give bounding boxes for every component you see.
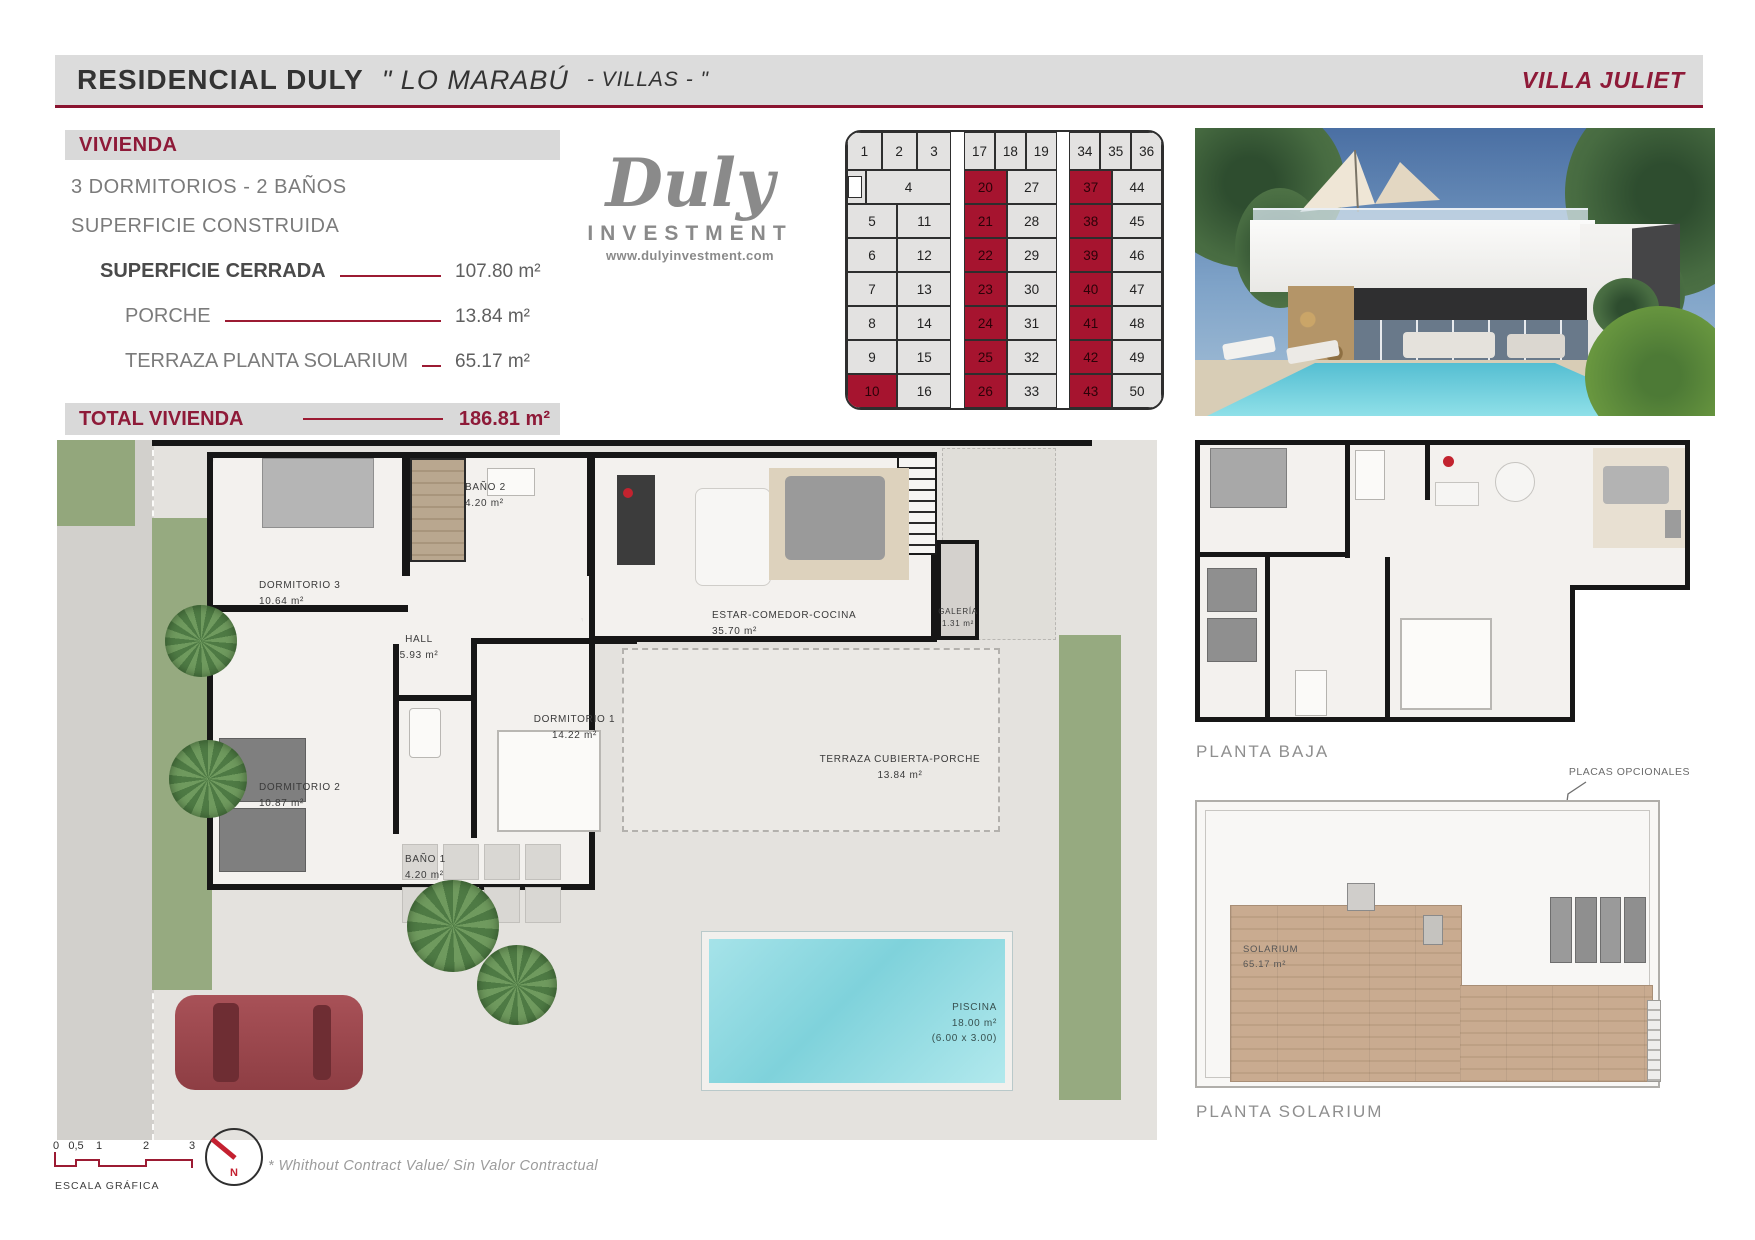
solar-panels xyxy=(1550,897,1646,963)
car-rear-glass xyxy=(313,1005,331,1080)
car xyxy=(175,995,363,1090)
plot-cell: 26 xyxy=(964,374,1007,408)
plot-cell: 20 xyxy=(964,170,1007,204)
svg-text:N: N xyxy=(230,1167,238,1179)
plot-cell: 42 xyxy=(1069,340,1112,374)
row-value: 13.84 m² xyxy=(455,306,560,328)
plot-block-left: 123 4 5678910 111213141516 xyxy=(847,132,951,408)
mini-appliance xyxy=(1665,510,1681,538)
planta-solarium-label: PLANTA SOLARIUM xyxy=(1196,1102,1383,1122)
header-band: RESIDENCIAL DULY " LO MARABÚ - VILLAS - … xyxy=(55,55,1703,105)
street-gap xyxy=(1057,132,1070,408)
plot-cell: 46 xyxy=(1112,238,1162,272)
cooktop xyxy=(623,488,633,498)
plot-cell: 6 xyxy=(847,238,897,272)
villa-soffit xyxy=(1345,288,1587,322)
specs-panel: VIVIENDA 3 DORMITORIOS - 2 BAÑOS SUPERFI… xyxy=(65,130,560,435)
solar-panel xyxy=(1600,897,1622,963)
plot-cell: 1 xyxy=(847,132,882,170)
built-area-label: SUPERFICIE CONSTRUIDA xyxy=(71,215,560,238)
plot-cell: 21 xyxy=(964,204,1007,238)
plot-cell: 3 xyxy=(917,132,952,170)
toilet-bath1 xyxy=(409,708,441,758)
logo-subtitle: INVESTMENT xyxy=(565,222,815,246)
palm-tree xyxy=(169,740,247,818)
row-label: PORCHE xyxy=(125,305,211,328)
kitchen-island xyxy=(617,475,655,565)
mini-island xyxy=(1435,482,1479,506)
plot-cell: 24 xyxy=(964,306,1007,340)
wall-segment xyxy=(393,695,477,701)
mini-bath-fixture xyxy=(1295,670,1327,716)
wardrobe xyxy=(410,458,466,562)
mini-armchair xyxy=(1207,568,1257,612)
villa-photo xyxy=(1195,128,1715,416)
plot-cell: 18 xyxy=(995,132,1026,170)
palm-tree xyxy=(477,945,557,1025)
total-value: 186.81 m² xyxy=(459,408,550,431)
plot-cell: 25 xyxy=(964,340,1007,374)
label-bano2: BAÑO 24.20 m² xyxy=(465,480,506,511)
plot-cell: 13 xyxy=(897,272,951,306)
palm-tree xyxy=(407,880,499,972)
plot-row-4: 4 xyxy=(847,170,951,204)
plot-cell: 12 xyxy=(897,238,951,272)
palm-tree xyxy=(165,605,237,677)
label-dormitorio3: DORMITORIO 310.64 m² xyxy=(259,578,341,609)
plot-cell: 9 xyxy=(847,340,897,374)
plot-cell: 36 xyxy=(1131,132,1162,170)
plot-notch xyxy=(847,170,866,204)
page-title: RESIDENCIAL DULY xyxy=(77,64,364,96)
plot-cell: 45 xyxy=(1112,204,1162,238)
plot-map: 123 4 5678910 111213141516 171819 xyxy=(845,130,1164,410)
disclaimer-note: * Whithout Contract Value/ Sin Valor Con… xyxy=(268,1158,598,1174)
svg-text:2: 2 xyxy=(143,1140,149,1152)
spec-row-cerrada: SUPERFICIE CERRADA 107.80 m² xyxy=(65,260,560,283)
header-rule xyxy=(55,105,1703,108)
plot-cell: 48 xyxy=(1112,306,1162,340)
flyer-page: RESIDENCIAL DULY " LO MARABÚ - VILLAS - … xyxy=(0,0,1755,1240)
rooflight xyxy=(1347,883,1375,911)
mini-table xyxy=(1495,462,1535,502)
bedrooms-baths: 3 DORMITORIOS - 2 BAÑOS xyxy=(71,176,560,199)
outdoor-sofa xyxy=(1507,334,1565,358)
plot-block-mid: 171819 20212223242526 27282930313233 xyxy=(964,132,1057,408)
plot-cell: 27 xyxy=(1007,170,1057,204)
label-solarium: SOLARIUM65.17 m² xyxy=(1243,943,1298,972)
wall-segment xyxy=(1345,440,1350,558)
row-value: 107.80 m² xyxy=(455,261,560,283)
project-name-suffix: - VILLAS - " xyxy=(587,68,709,92)
label-estar: ESTAR-COMEDOR-COCINA35.70 m² xyxy=(712,608,856,639)
plot-cell: 47 xyxy=(1112,272,1162,306)
svg-text:1: 1 xyxy=(96,1140,102,1152)
label-galeria: GALERÍA1.31 m² xyxy=(935,606,981,631)
leader-line xyxy=(303,418,442,420)
plot-cell: 11 xyxy=(897,204,951,238)
plot-cell: 38 xyxy=(1069,204,1112,238)
bed-dormitorio2 xyxy=(219,808,306,872)
label-bano1: BAÑO 14.20 m² xyxy=(405,852,446,883)
wall-segment xyxy=(1425,440,1430,500)
plot-cell: 32 xyxy=(1007,340,1057,374)
logo-website: www.dulyinvestment.com xyxy=(565,248,815,263)
car-windshield xyxy=(213,1003,239,1082)
bed-dormitorio1 xyxy=(497,730,601,832)
villa-name: VILLA JULIET xyxy=(1522,67,1685,94)
leader-line xyxy=(340,275,441,277)
wall-segment xyxy=(1265,557,1270,722)
mini-sofa xyxy=(1603,466,1669,504)
row-label: SUPERFICIE CERRADA xyxy=(100,260,326,283)
project-name: " LO MARABÚ xyxy=(382,65,569,96)
sofa xyxy=(785,476,885,560)
svg-text:0,5: 0,5 xyxy=(68,1140,83,1152)
wall-segment xyxy=(1570,585,1575,722)
plot-cell: 30 xyxy=(1007,272,1057,306)
plot-cell: 34 xyxy=(1069,132,1100,170)
total-label: TOTAL VIVIENDA xyxy=(79,408,243,431)
plot-cell: 41 xyxy=(1069,306,1112,340)
label-dormitorio1: DORMITORIO 114.22 m² xyxy=(512,712,637,743)
wall-segment xyxy=(1685,440,1690,590)
plot-cell: 7 xyxy=(847,272,897,306)
paver xyxy=(525,887,561,923)
north-compass: N xyxy=(205,1128,263,1186)
plot-cell: 19 xyxy=(1026,132,1057,170)
plot-cell: 4 xyxy=(866,170,952,204)
wall-segment xyxy=(1575,585,1690,590)
scale-bar: 0 0,5 1 2 3 xyxy=(50,1138,220,1178)
plot-cell: 40 xyxy=(1069,272,1112,306)
plot-cell: 43 xyxy=(1069,374,1112,408)
street xyxy=(57,440,154,1140)
wall-segment xyxy=(1195,440,1690,445)
plot-cell: 35 xyxy=(1100,132,1131,170)
leader-line xyxy=(422,365,441,367)
svg-text:3: 3 xyxy=(189,1140,195,1152)
roof-stair xyxy=(1647,1000,1661,1082)
plot-cell: 10 xyxy=(847,374,897,408)
mini-armchair xyxy=(1207,618,1257,662)
wall-segment xyxy=(402,456,410,576)
label-hall: HALL5.93 m² xyxy=(389,632,449,663)
plot-cell: 33 xyxy=(1007,374,1057,408)
dining-table xyxy=(695,488,771,586)
plot-cell: 37 xyxy=(1069,170,1112,204)
chimney xyxy=(1423,915,1443,945)
plot-cell: 8 xyxy=(847,306,897,340)
plot-cell: 5 xyxy=(847,204,897,238)
row-value: 65.17 m² xyxy=(455,351,560,373)
planta-baja-label: PLANTA BAJA xyxy=(1196,742,1329,762)
total-row: TOTAL VIVIENDA 186.81 m² xyxy=(65,403,560,435)
wall-segment xyxy=(1385,557,1390,722)
wall-segment xyxy=(587,456,593,576)
logo-wordmark: Duly xyxy=(565,150,815,216)
wall-segment xyxy=(1195,440,1200,722)
main-floorplan: DORMITORIO 310.64 m² BAÑO 24.20 m² HALL5… xyxy=(57,440,1157,1140)
plot-block-right: 343536 37383940414243 44454647484950 xyxy=(1069,132,1162,408)
plot-cell: 2 xyxy=(882,132,917,170)
mini-bed-white xyxy=(1400,618,1492,710)
label-piscina: PISCINA18.00 m²(6.00 x 3.00) xyxy=(857,1000,997,1047)
solar-panel xyxy=(1624,897,1646,963)
wall-segment xyxy=(471,638,477,838)
plot-cell: 16 xyxy=(897,374,951,408)
svg-text:0: 0 xyxy=(53,1140,59,1152)
boundary-wall xyxy=(152,440,1092,446)
solar-panel xyxy=(1575,897,1597,963)
bed-dormitorio3 xyxy=(262,458,374,528)
row-label: TERRAZA PLANTA SOLARIUM xyxy=(125,350,408,373)
covered-terrace xyxy=(622,648,1000,832)
plot-cell: 31 xyxy=(1007,306,1057,340)
planta-baja-plan xyxy=(1195,440,1690,725)
specs-title: VIVIENDA xyxy=(65,130,560,160)
garden-right xyxy=(1059,635,1121,1100)
label-dormitorio2: DORMITORIO 210.87 m² xyxy=(259,780,341,811)
paver xyxy=(525,844,561,880)
plot-cell: 49 xyxy=(1112,340,1162,374)
spec-row-terraza: TERRAZA PLANTA SOLARIUM 65.17 m² xyxy=(65,350,560,373)
planta-solarium-plan: SOLARIUM65.17 m² xyxy=(1195,795,1690,1090)
plot-cell: 22 xyxy=(964,238,1007,272)
plot-cell: 14 xyxy=(897,306,951,340)
plot-cell: 50 xyxy=(1112,374,1162,408)
paver xyxy=(484,844,520,880)
spec-row-porche: PORCHE 13.84 m² xyxy=(65,305,560,328)
paver xyxy=(443,844,479,880)
street-gap xyxy=(951,132,964,408)
plot-cell: 23 xyxy=(964,272,1007,306)
wall-segment xyxy=(477,638,637,644)
mini-bed xyxy=(1210,448,1287,508)
villa-roof xyxy=(1250,220,1595,292)
plot-cell: 44 xyxy=(1112,170,1162,204)
wall-segment xyxy=(1195,552,1350,557)
label-terraza: TERRAZA CUBIERTA-PORCHE13.84 m² xyxy=(805,752,995,783)
mini-bath-fixture xyxy=(1355,450,1385,500)
garden-verge xyxy=(57,440,135,526)
duly-logo: Duly INVESTMENT www.dulyinvestment.com xyxy=(565,150,815,263)
wall-segment xyxy=(393,644,399,834)
plot-cell: 39 xyxy=(1069,238,1112,272)
plot-cell: 17 xyxy=(964,132,995,170)
solar-panel xyxy=(1550,897,1572,963)
plot-cell: 29 xyxy=(1007,238,1057,272)
outdoor-sofa xyxy=(1403,332,1495,358)
north-needle: N xyxy=(207,1130,261,1184)
scale-caption: ESCALA GRÁFICA xyxy=(55,1180,159,1192)
plot-cell: 15 xyxy=(897,340,951,374)
plot-cell: 28 xyxy=(1007,204,1057,238)
placas-label: PLACAS OPCIONALES xyxy=(1480,766,1690,778)
mini-cooktop xyxy=(1443,456,1454,467)
leader-line xyxy=(225,320,441,322)
solarium-deck-arm xyxy=(1460,985,1653,1082)
